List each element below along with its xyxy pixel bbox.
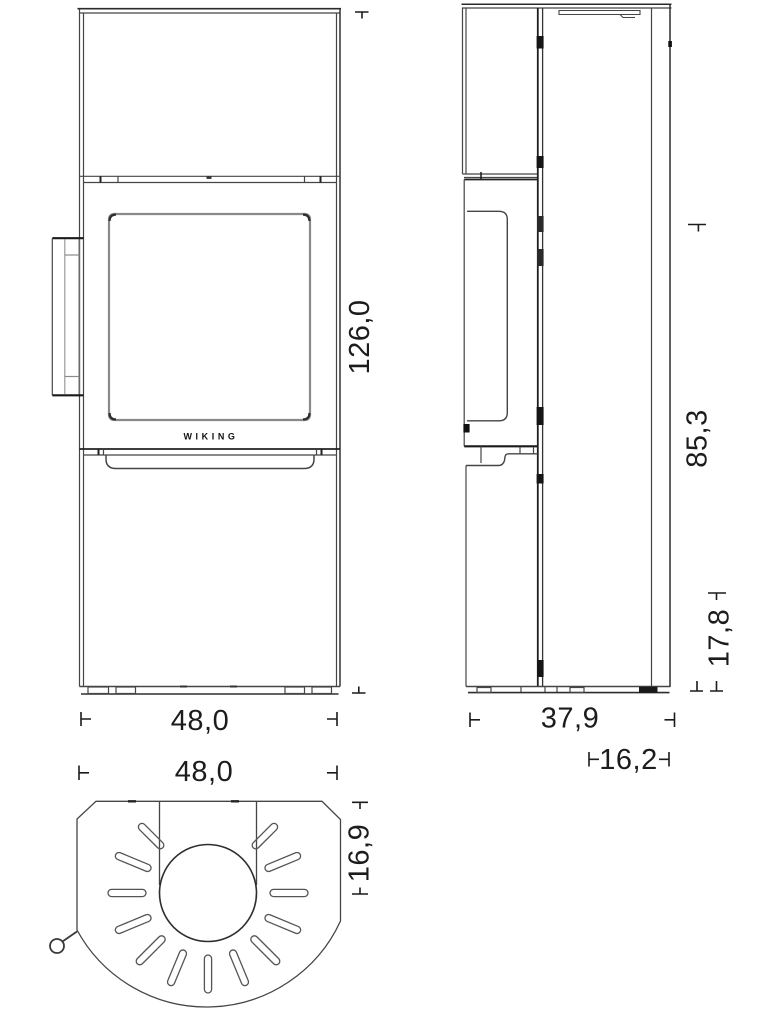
svg-text:17,8: 17,8 [704, 609, 736, 667]
svg-text:WIKING: WIKING [183, 432, 238, 442]
svg-text:85,3: 85,3 [682, 409, 714, 467]
svg-text:16,9: 16,9 [344, 824, 376, 882]
svg-text:48,0: 48,0 [171, 705, 229, 737]
svg-text:37,9: 37,9 [541, 703, 599, 735]
svg-text:16,2: 16,2 [599, 744, 657, 776]
svg-text:48,0: 48,0 [175, 756, 233, 788]
svg-text:126,0: 126,0 [344, 299, 376, 374]
